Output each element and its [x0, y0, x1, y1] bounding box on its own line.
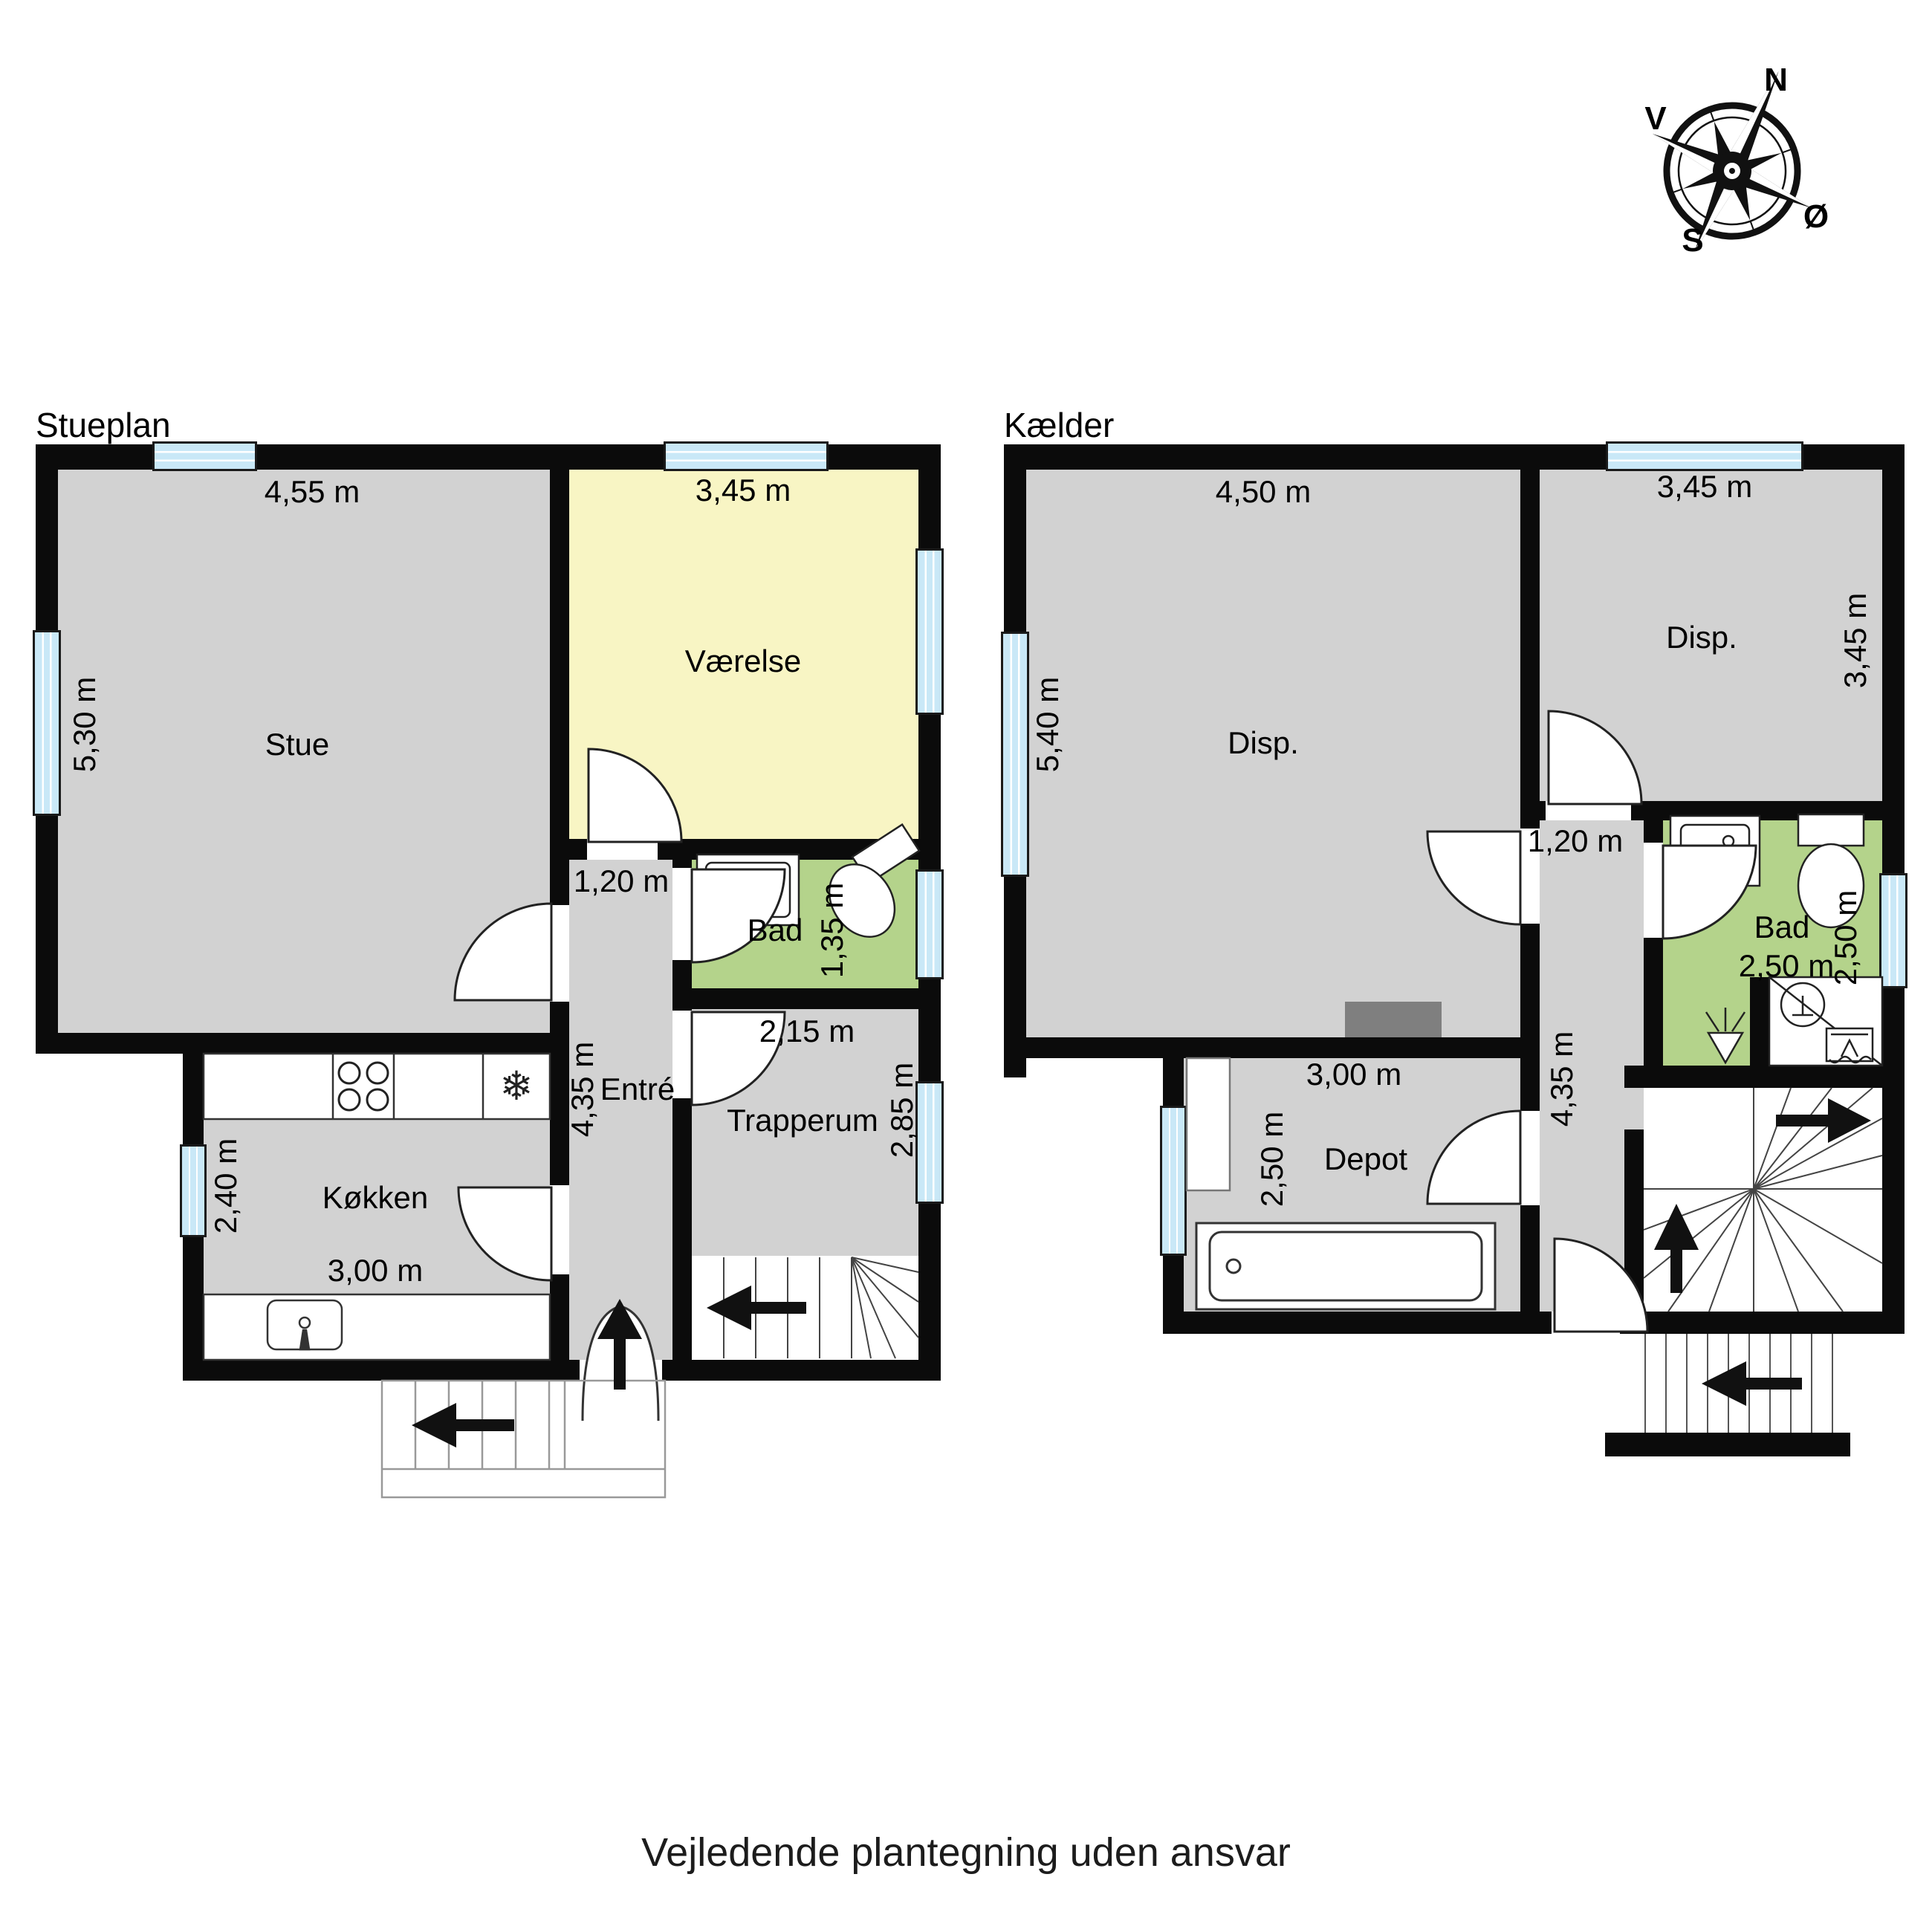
window — [915, 869, 944, 979]
exterior-stairs-kaelder — [1645, 1334, 1832, 1433]
wall — [1163, 1312, 1905, 1334]
window — [915, 548, 944, 715]
door-opening — [672, 868, 692, 960]
door-opening — [1546, 801, 1631, 820]
dim-label: 5,30 m — [67, 677, 103, 772]
wall — [662, 1360, 672, 1381]
direction-arrows-kaelder — [1654, 1098, 1871, 1406]
floorplan-canvas: ❄ — [0, 0, 1932, 1932]
wall — [1520, 470, 1540, 817]
dim-label: 2,50 m — [1828, 890, 1864, 985]
door-opening — [587, 839, 658, 860]
wall — [36, 1033, 569, 1054]
window — [33, 630, 61, 816]
dim-label: 4,35 m — [1544, 1031, 1580, 1127]
room-label: Værelse — [685, 644, 801, 679]
room-label: Trapperum — [727, 1103, 878, 1138]
window — [152, 441, 257, 471]
dim-label: 3,45 m — [1657, 469, 1752, 505]
door-opening — [550, 905, 569, 1002]
room-label: Entré — [600, 1072, 675, 1107]
dim-label: 3,00 m — [1306, 1057, 1401, 1092]
wall — [569, 1360, 580, 1381]
door-opening — [550, 1185, 569, 1274]
window — [1879, 873, 1907, 988]
room-label: Disp. — [1228, 725, 1299, 761]
room-depot — [1184, 1058, 1520, 1312]
window — [180, 1144, 207, 1237]
dim-label: 3,45 m — [696, 473, 791, 508]
room-label: Bad — [748, 912, 803, 948]
chimney-block — [1345, 1002, 1442, 1037]
room-label: Disp. — [1666, 620, 1737, 655]
dim-label: 3,45 m — [1838, 593, 1873, 688]
basement-stairs — [724, 1257, 918, 1358]
room-label: Depot — [1324, 1141, 1407, 1177]
wall — [183, 1360, 569, 1381]
dim-label: 2,50 m — [1254, 1112, 1290, 1207]
wall — [550, 470, 569, 840]
dim-label: 2,85 m — [884, 1063, 920, 1158]
dim-label: 4,35 m — [565, 1042, 600, 1137]
dim-label: 1,20 m — [574, 863, 669, 899]
wall — [1750, 977, 1769, 1066]
dim-label: 2,50 m — [1739, 948, 1834, 984]
compass-rose-icon — [1615, 34, 1858, 288]
wall — [1624, 1066, 1882, 1088]
disclaimer-caption: Vejledende plantegning uden ansvar — [0, 1829, 1932, 1876]
window — [664, 441, 829, 471]
room-label: Stue — [265, 727, 329, 762]
dim-label: 1,20 m — [1528, 823, 1623, 859]
plan-title-stueplan: Stueplan — [36, 405, 171, 445]
room-label: Bad — [1754, 910, 1810, 945]
door-opening — [580, 1360, 662, 1381]
dim-label: 1,35 m — [814, 883, 850, 978]
exterior-stairs-stueplan — [382, 1381, 665, 1497]
window — [1606, 441, 1803, 471]
dim-label: 2,40 m — [208, 1138, 244, 1234]
door-opening — [1644, 843, 1663, 938]
door-opening — [1520, 1111, 1540, 1205]
dim-label: 4,55 m — [265, 474, 360, 510]
compass-east-label: Ø — [1803, 198, 1829, 236]
room-bad-stueplan — [692, 860, 918, 988]
window — [1160, 1106, 1187, 1256]
wall — [672, 1360, 941, 1381]
compass-north-label: N — [1764, 62, 1788, 99]
winder-stairs — [1644, 1088, 1882, 1312]
compass-west-label: V — [1644, 100, 1666, 137]
room-label: Køkken — [322, 1180, 428, 1216]
dim-label: 4,50 m — [1216, 474, 1311, 510]
door-opening — [672, 1011, 692, 1098]
dim-label: 3,00 m — [328, 1253, 423, 1288]
compass-south-label: S — [1682, 222, 1703, 259]
wall — [1605, 1433, 1850, 1456]
dim-label: 5,40 m — [1030, 677, 1066, 772]
wall — [672, 988, 941, 1009]
dim-label: 2,15 m — [759, 1014, 855, 1049]
door-opening — [1552, 1312, 1620, 1334]
window — [1001, 632, 1029, 877]
plan-title-kaelder: Kælder — [1004, 405, 1114, 445]
wall — [1004, 1037, 1520, 1058]
wall — [1624, 1129, 1644, 1312]
